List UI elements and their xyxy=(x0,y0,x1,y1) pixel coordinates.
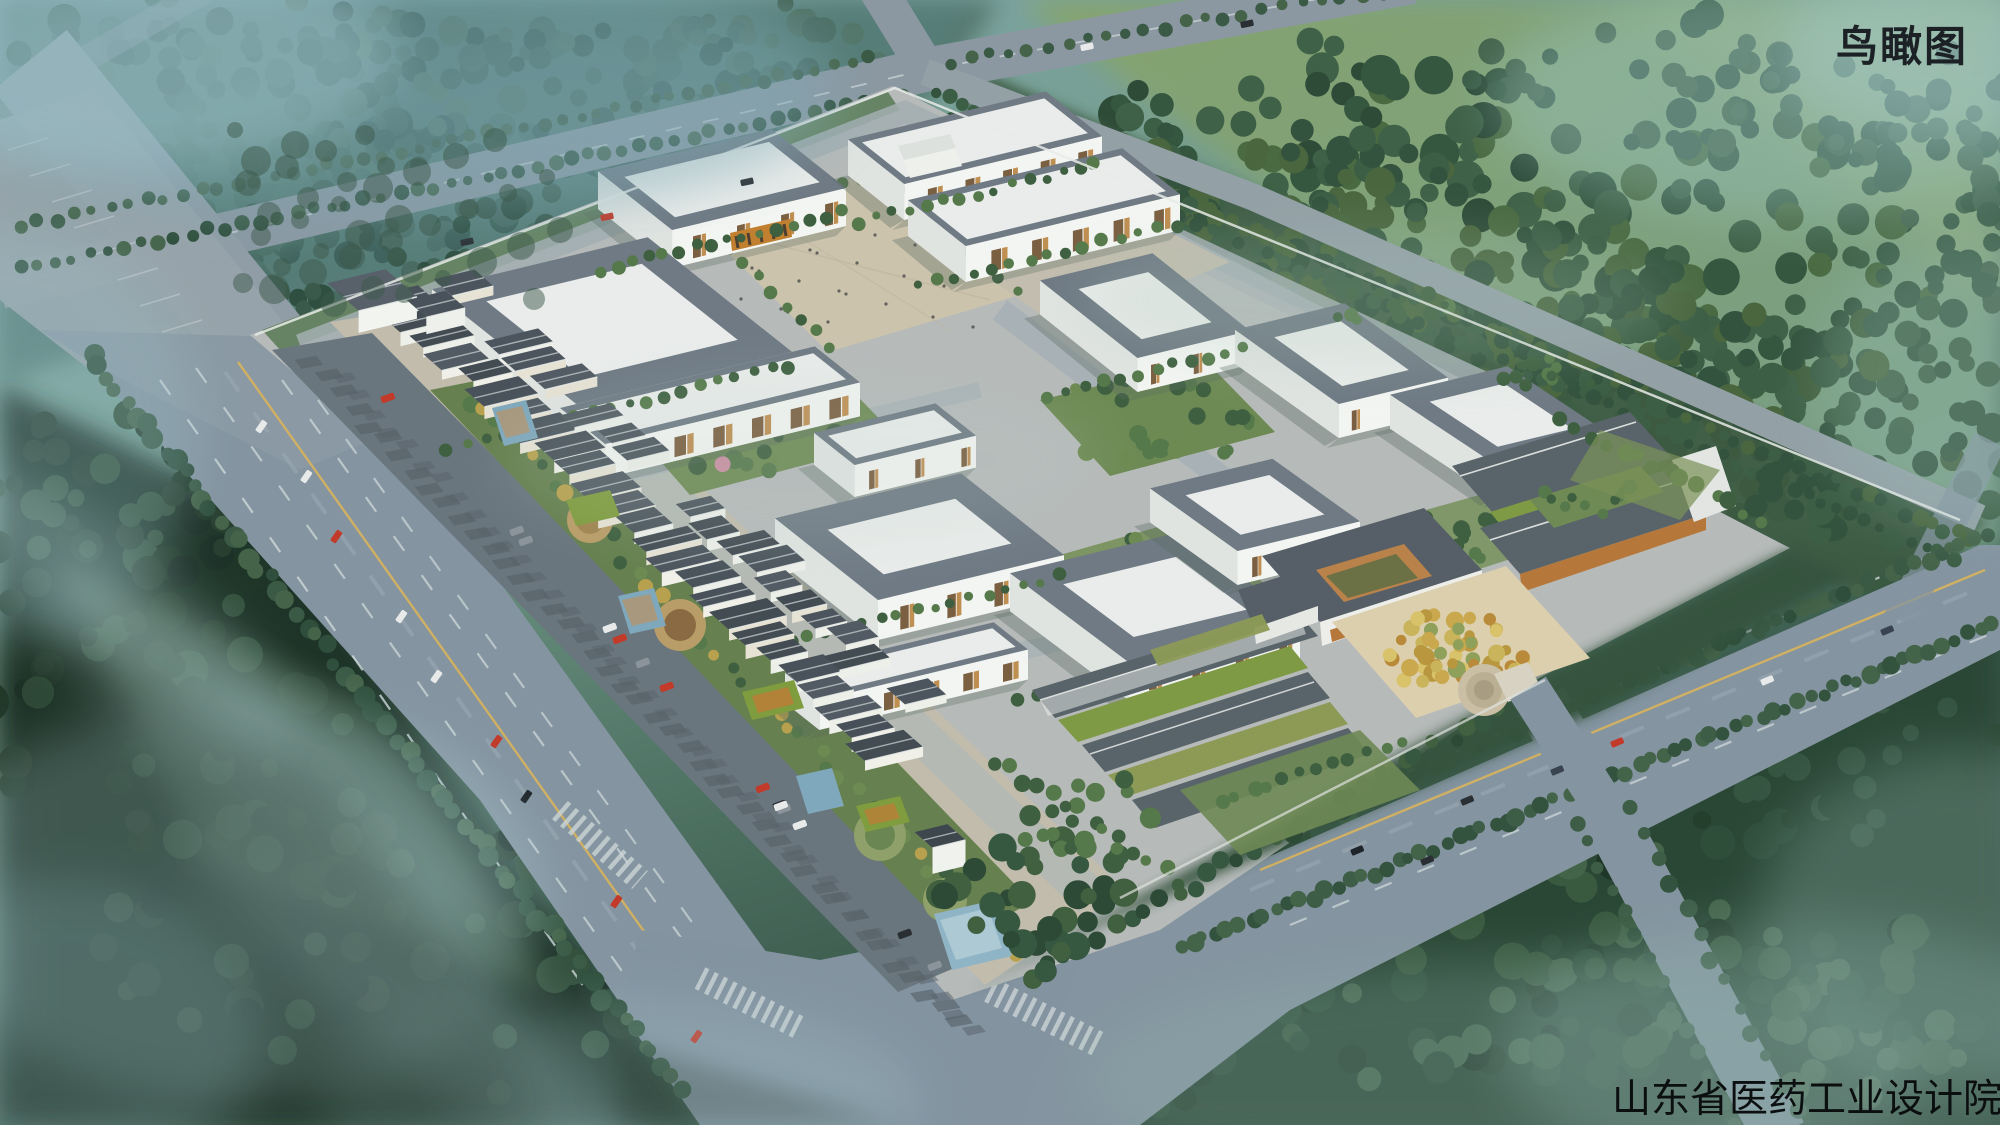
svg-text:鸟瞰图: 鸟瞰图 xyxy=(1836,23,1968,70)
svg-text:山东省医药工业设计院: 山东省医药工业设计院 xyxy=(1612,1078,2000,1121)
